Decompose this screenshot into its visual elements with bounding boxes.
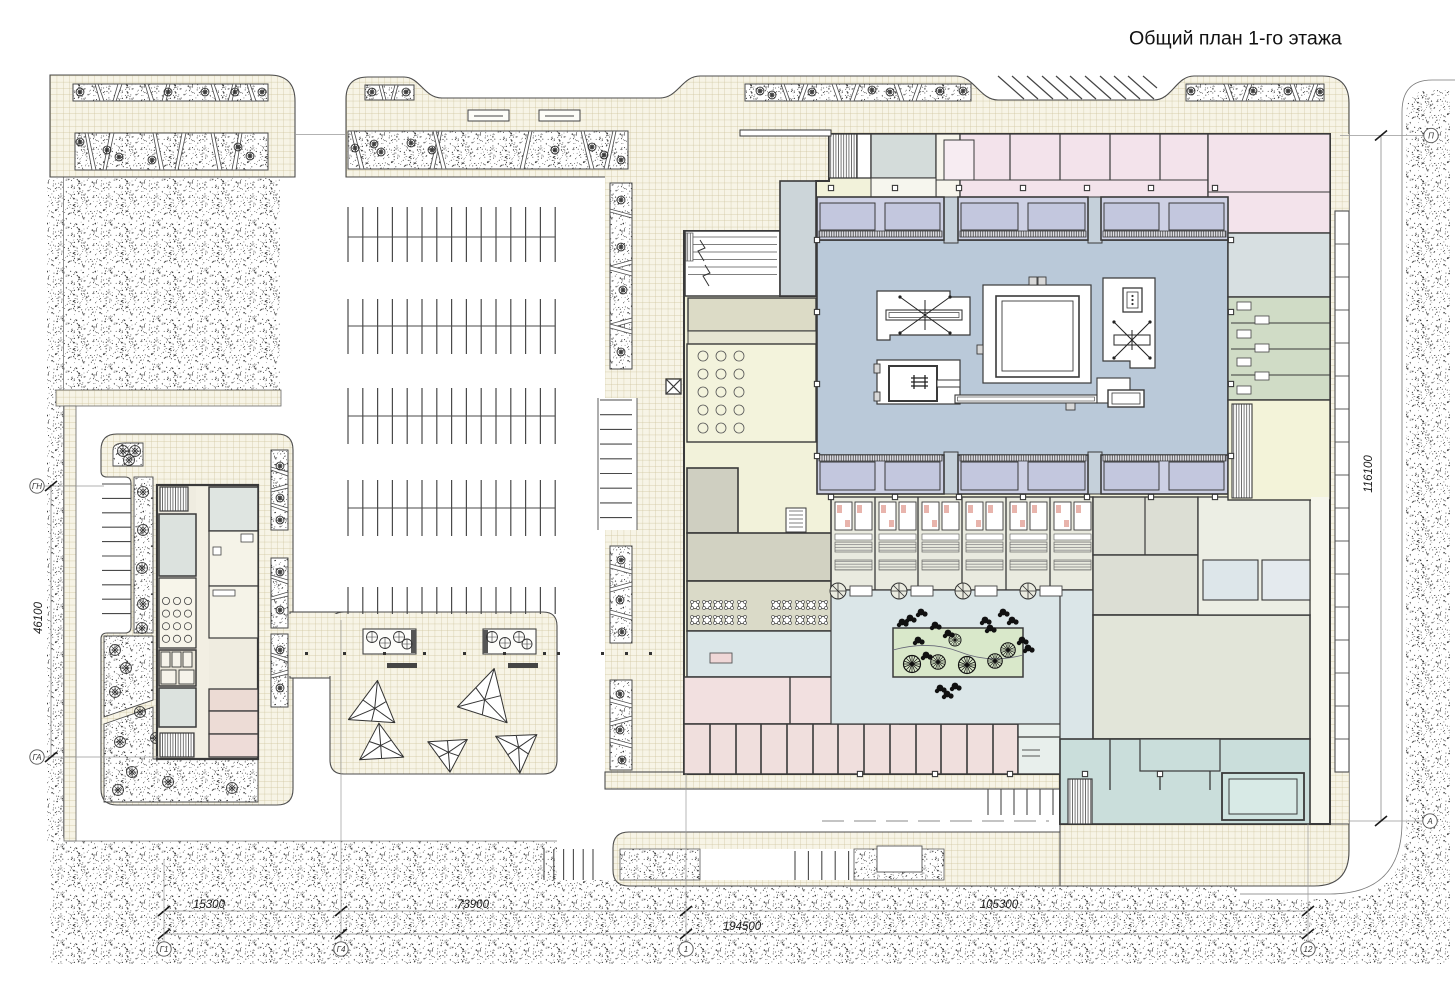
svg-text:105300: 105300 [980, 899, 1019, 911]
svg-text:ГН: ГН [32, 482, 42, 491]
svg-text:ГА: ГА [32, 753, 41, 762]
svg-text:Г4: Г4 [337, 945, 346, 954]
svg-text:116100: 116100 [1363, 455, 1375, 493]
svg-text:194500: 194500 [723, 921, 762, 933]
svg-text:15300: 15300 [193, 899, 226, 911]
svg-text:12: 12 [1304, 945, 1313, 954]
svg-text:73900: 73900 [457, 899, 490, 911]
svg-text:1: 1 [684, 945, 688, 954]
svg-text:П: П [1428, 131, 1434, 140]
svg-text:Общий план 1-го этажа: Общий план 1-го этажа [1129, 28, 1342, 50]
svg-text:Г1: Г1 [160, 945, 169, 954]
svg-text:46100: 46100 [33, 601, 45, 634]
svg-text:А: А [1426, 817, 1432, 826]
